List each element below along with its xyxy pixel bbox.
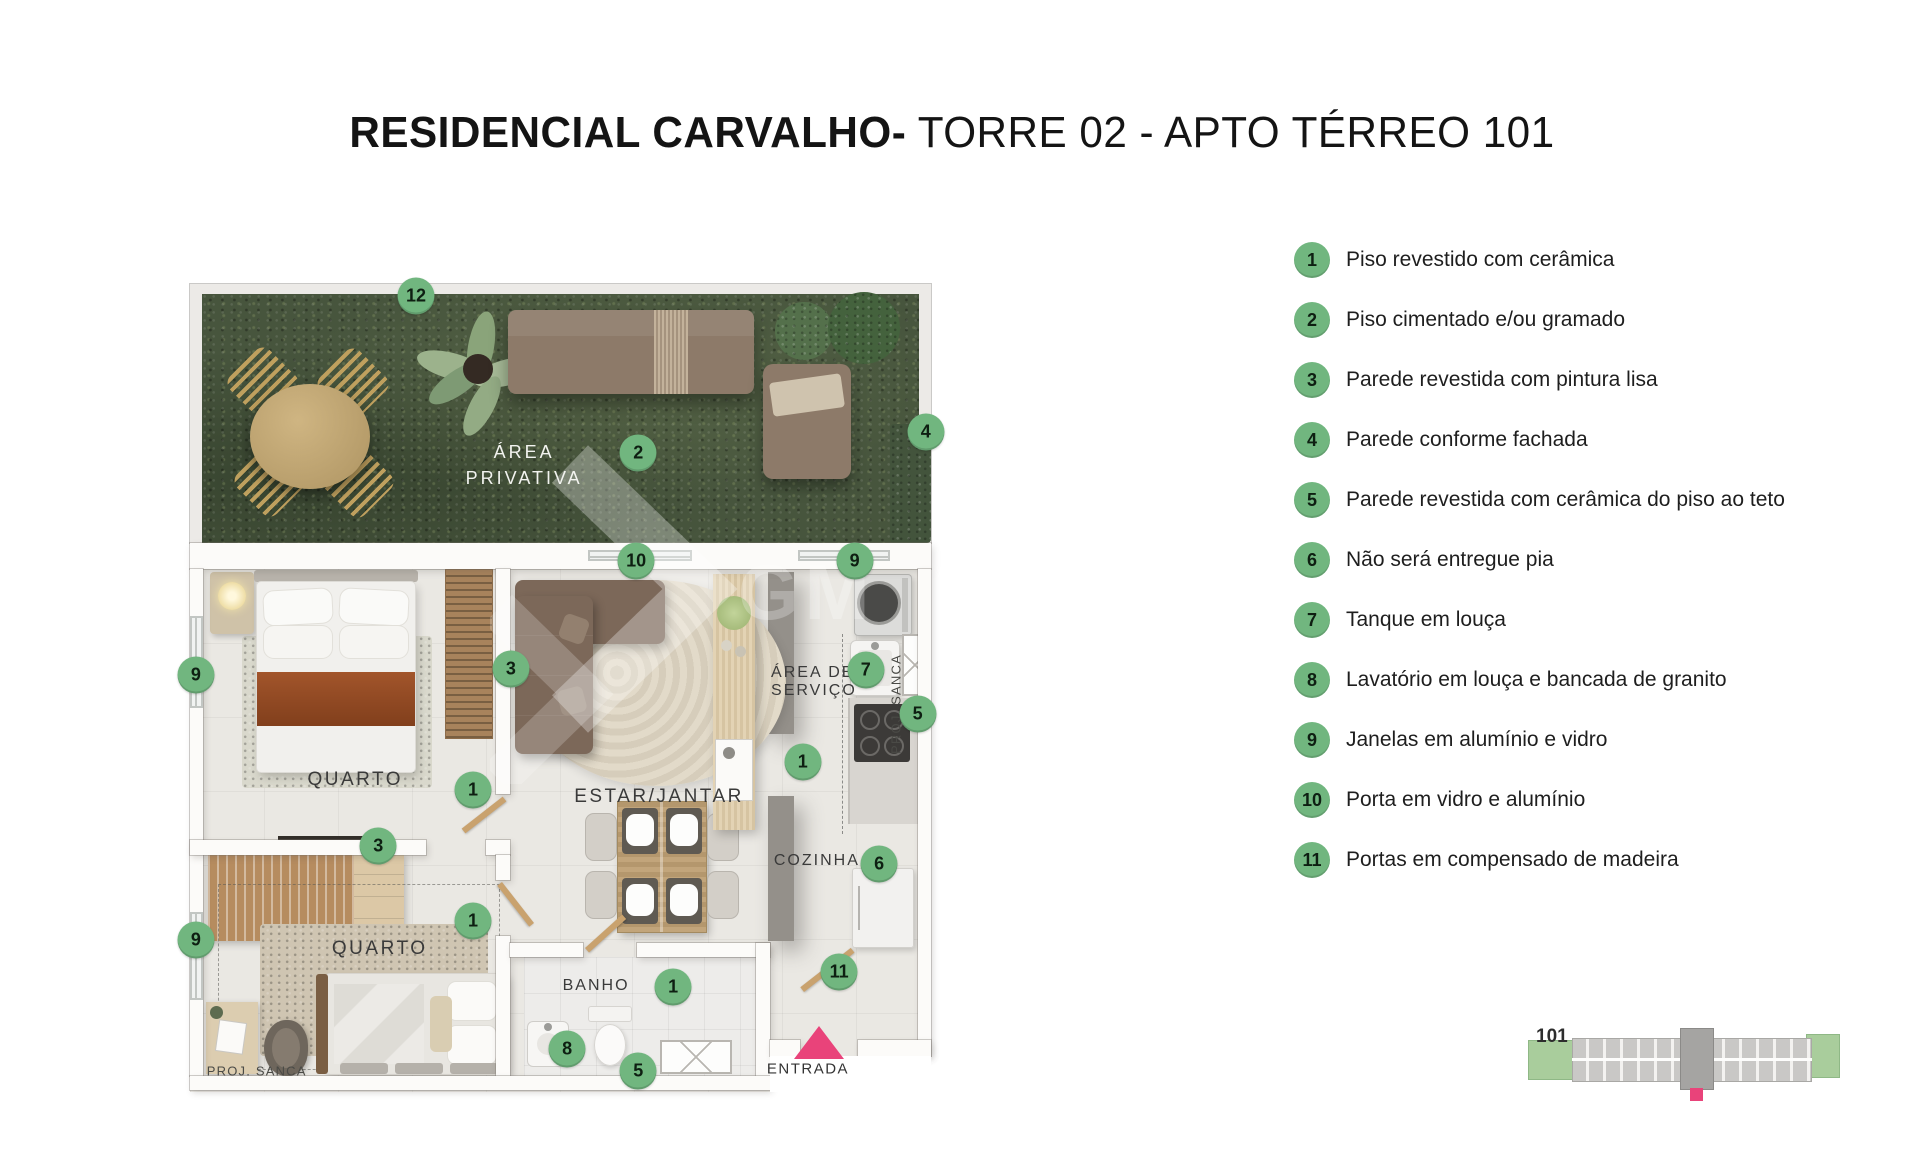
plan-marker-5: 5 (899, 695, 936, 732)
minimap-core (1680, 1028, 1714, 1090)
label-quarto-2: QUARTO (332, 938, 428, 960)
legend-number-badge: 9 (1294, 722, 1330, 758)
legend-label: Tanque em louça (1346, 608, 1506, 632)
plan-marker-9: 9 (177, 657, 214, 694)
shower-box (660, 1040, 732, 1074)
plan-marker-9: 9 (177, 922, 214, 959)
plan-marker-7: 7 (847, 652, 884, 689)
garden-area (190, 284, 931, 543)
floor-plan: GM ÁREA PRIVATIVA QUARTO ESTAR/JANTAR ÁR… (190, 284, 931, 1092)
bedroom2-bench-cushion (450, 1063, 498, 1074)
plan-marker-2: 2 (620, 434, 657, 471)
washing-machine (854, 574, 912, 636)
legend-label: Piso revestido com cerâmica (1346, 248, 1614, 272)
dining-chair (586, 872, 616, 918)
label-estar-jantar: ESTAR/JANTAR (574, 786, 744, 808)
wall-right (918, 569, 931, 1056)
legend-item-2: 2Piso cimentado e/ou gramado (1294, 300, 1874, 340)
label-banho: BANHO (563, 977, 630, 995)
plan-marker-1: 1 (655, 968, 692, 1005)
label-quarto-1: QUARTO (307, 769, 403, 791)
plan-marker-11: 11 (821, 953, 858, 990)
garden-bush (775, 302, 833, 360)
wall-bedrooms-divider (486, 840, 510, 855)
dining-chair (708, 872, 738, 918)
plan-marker-8: 8 (549, 1031, 586, 1068)
plan-marker-1: 1 (784, 744, 821, 781)
legend-label: Portas em compensado de madeira (1346, 848, 1679, 872)
plan-marker-6: 6 (861, 846, 898, 883)
plan-marker-3: 3 (360, 828, 397, 865)
plan-marker-1: 1 (455, 902, 492, 939)
toilet-bowl (594, 1024, 626, 1066)
legend-item-3: 3Parede revestida com pintura lisa (1294, 360, 1874, 400)
legend-item-6: 6Não será entregue pia (1294, 540, 1874, 580)
legend-number-badge: 3 (1294, 362, 1330, 398)
legend-item-5: 5Parede revestida com cerâmica do piso a… (1294, 480, 1874, 520)
legend-label: Parede revestida com cerâmica do piso ao… (1346, 488, 1785, 512)
legend-item-4: 4Parede conforme fachada (1294, 420, 1874, 460)
plan-marker-4: 4 (907, 413, 944, 450)
legend-label: Piso cimentado e/ou gramado (1346, 308, 1625, 332)
bedroom1-wardrobe (446, 570, 492, 738)
legend-item-1: 1Piso revestido com cerâmica (1294, 240, 1874, 280)
plan-marker-10: 10 (618, 543, 655, 580)
plan-marker-1: 1 (455, 771, 492, 808)
bedroom2-bench-cushion (395, 1063, 443, 1074)
legend-item-9: 9Janelas em alumínio e vidro (1294, 720, 1874, 760)
legend-number-badge: 4 (1294, 422, 1330, 458)
legend-number-badge: 11 (1294, 842, 1330, 878)
wall-bedroom2-hall (496, 936, 510, 1076)
wall-bathroom-top (510, 943, 583, 957)
wall-bathroom-top (637, 943, 770, 957)
bedroom1-lamp (218, 582, 246, 610)
entrada-arrow (794, 1026, 844, 1059)
legend-number-badge: 1 (1294, 242, 1330, 278)
legend-label: Parede conforme fachada (1346, 428, 1588, 452)
page-title: RESIDENCIAL CARVALHO- TORRE 02 - APTO TÉ… (38, 108, 1866, 158)
garden-table (250, 384, 370, 489)
plan-marker-5: 5 (620, 1052, 657, 1089)
label-entrada: ENTRADA (767, 1061, 849, 1078)
label-area-servico: ÁREA DE SERVIÇO (771, 664, 857, 700)
wall-bathroom-right (756, 943, 770, 1076)
legend-label: Lavatório em louça e bancada de granito (1346, 668, 1727, 692)
label-cozinha: COZINHA (774, 852, 860, 870)
legend-number-badge: 5 (1294, 482, 1330, 518)
legend-item-7: 7Tanque em louça (1294, 600, 1874, 640)
title-regular: TORRE 02 - APTO TÉRREO 101 (906, 108, 1554, 157)
label-proj-sanca: PROJ. SANCA (207, 1063, 307, 1078)
legend-label: Janelas em alumínio e vidro (1346, 728, 1607, 752)
bedroom1-bed (254, 570, 418, 582)
legend-label: Porta em vidro e alumínio (1346, 788, 1585, 812)
bedroom2-bench-cushion (340, 1063, 388, 1074)
legend-item-10: 10Porta em vidro e alumínio (1294, 780, 1874, 820)
legend-label: Não será entregue pia (1346, 548, 1554, 572)
wall-bedroom2-hall (496, 855, 510, 880)
plan-marker-9: 9 (836, 543, 873, 580)
minimap-unit-label: 101 (1536, 1026, 1568, 1048)
garden-daybed (508, 310, 754, 394)
dining-chair (586, 814, 616, 860)
page: RESIDENCIAL CARVALHO- TORRE 02 - APTO TÉ… (0, 0, 1920, 1152)
bedroom1-mattress (257, 582, 415, 772)
garden-lounge-chair (763, 364, 851, 479)
plan-marker-3: 3 (492, 650, 529, 687)
legend-number-badge: 7 (1294, 602, 1330, 638)
label-area-privativa: ÁREA PRIVATIVA (466, 439, 583, 491)
title-bold: RESIDENCIAL CARVALHO- (349, 108, 906, 157)
legend-number-badge: 10 (1294, 782, 1330, 818)
legend: 1Piso revestido com cerâmica2Piso ciment… (1294, 240, 1874, 880)
legend-item-8: 8Lavatório em louça e bancada de granito (1294, 660, 1874, 700)
garden-bush (828, 292, 900, 364)
building-minimap: 101 (1528, 1014, 1840, 1100)
minimap-location-marker (1690, 1088, 1703, 1101)
wall-bottom-right (858, 1040, 931, 1056)
legend-number-badge: 2 (1294, 302, 1330, 338)
plan-marker-12: 12 (398, 278, 435, 315)
legend-item-11: 11Portas em compensado de madeira (1294, 840, 1874, 880)
dining-table (618, 802, 706, 932)
toilet (588, 1006, 632, 1022)
legend-number-badge: 8 (1294, 662, 1330, 698)
legend-number-badge: 6 (1294, 542, 1330, 578)
legend-label: Parede revestida com pintura lisa (1346, 368, 1658, 392)
bedroom2-bed (326, 974, 508, 1074)
